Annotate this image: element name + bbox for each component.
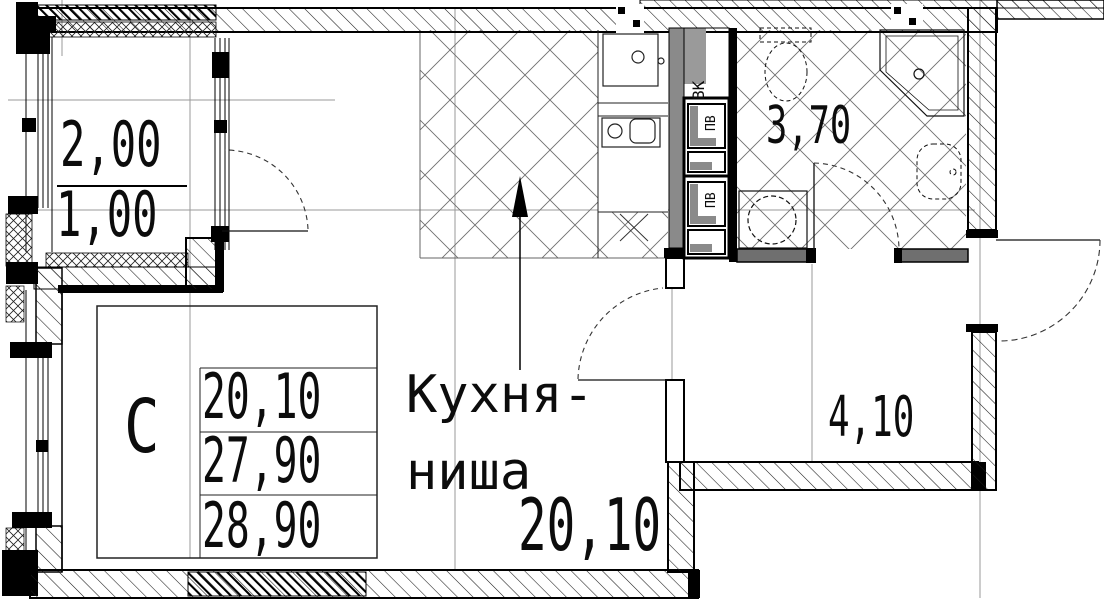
window-mullion <box>212 52 229 78</box>
vent-shaft <box>669 28 737 262</box>
duct-label-2: ПВ <box>705 192 718 208</box>
left-wall <box>2 2 224 596</box>
wall-joint <box>891 4 923 30</box>
kitchen-area-label: 20,10 <box>518 489 661 561</box>
window-mullion <box>36 440 48 452</box>
vent-shaft-label: ВК <box>691 81 707 100</box>
room-hall-partition <box>664 248 694 572</box>
duct-label-1: ПВ <box>705 115 718 131</box>
kitchen-leader-arrow <box>512 176 528 370</box>
floor-plan: 2,00 1,00 3,70 4,10 Кухня- ниша 20,10 С … <box>0 0 1104 600</box>
balcony-area-reduced: 1,00 <box>56 184 158 246</box>
balcony-area-total: 2,00 <box>60 114 162 176</box>
balcony-door <box>222 150 308 231</box>
window-mullion <box>22 118 36 132</box>
balcony-partition <box>211 38 229 250</box>
bottom-wall <box>30 570 700 598</box>
hallway-area-label: 4,10 <box>828 390 914 446</box>
top-wall <box>30 0 1104 37</box>
bathroom-area-label: 3,70 <box>766 100 851 152</box>
wall-joint <box>616 4 644 34</box>
window-mullion <box>211 226 229 242</box>
kitchen-name-line1: Кухня- <box>406 369 594 421</box>
table-row-total-area: 27,90 <box>202 430 321 492</box>
window-mullion <box>214 120 227 133</box>
table-row-total-with-balcony: 28,90 <box>202 495 321 557</box>
bathroom-wall <box>737 248 968 263</box>
entrance-door <box>996 240 1100 341</box>
hallway-wall <box>680 462 986 490</box>
apartment-type-label: С <box>124 390 160 464</box>
right-wall <box>966 8 998 490</box>
kitchen-name-line2: ниша <box>406 446 531 498</box>
table-row-living-area: 20,10 <box>202 366 321 428</box>
